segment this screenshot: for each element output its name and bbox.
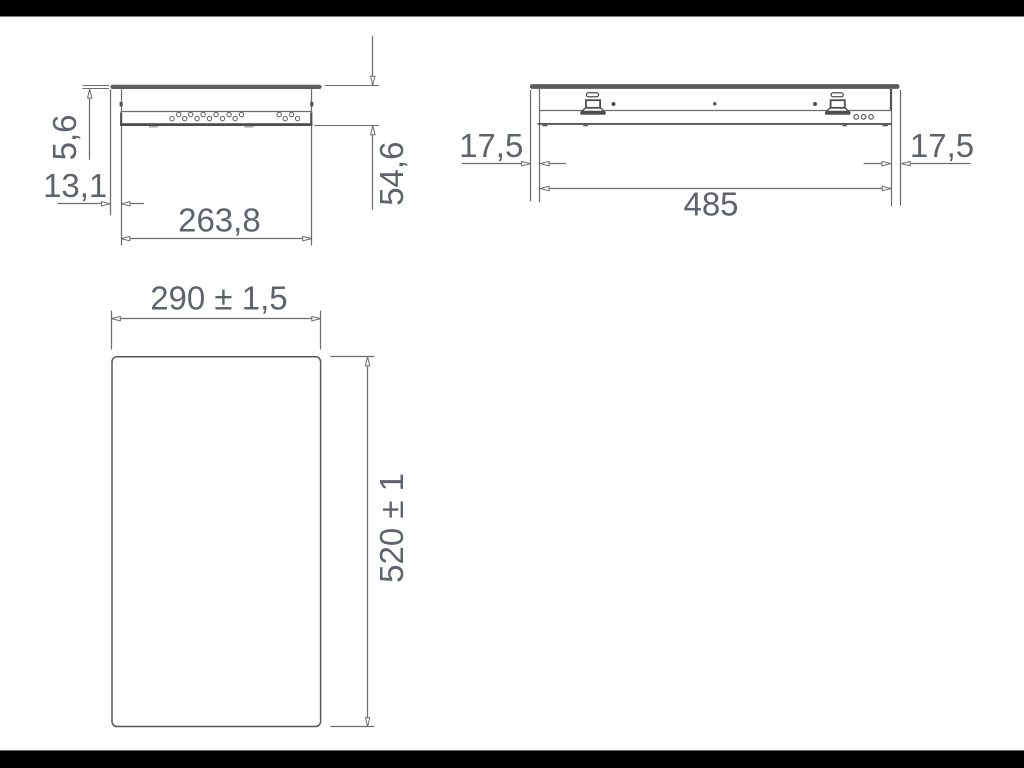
svg-text:290 ± 1,5: 290 ± 1,5 bbox=[150, 279, 287, 316]
svg-text:263,8: 263,8 bbox=[178, 202, 261, 239]
svg-text:13,1: 13,1 bbox=[43, 167, 107, 204]
svg-text:17,5: 17,5 bbox=[910, 127, 974, 164]
svg-text:54,6: 54,6 bbox=[373, 142, 410, 206]
svg-text:485: 485 bbox=[683, 185, 738, 222]
svg-text:520 ± 1: 520 ± 1 bbox=[373, 473, 410, 583]
svg-text:5,6: 5,6 bbox=[46, 114, 83, 160]
svg-text:17,5: 17,5 bbox=[459, 127, 523, 164]
